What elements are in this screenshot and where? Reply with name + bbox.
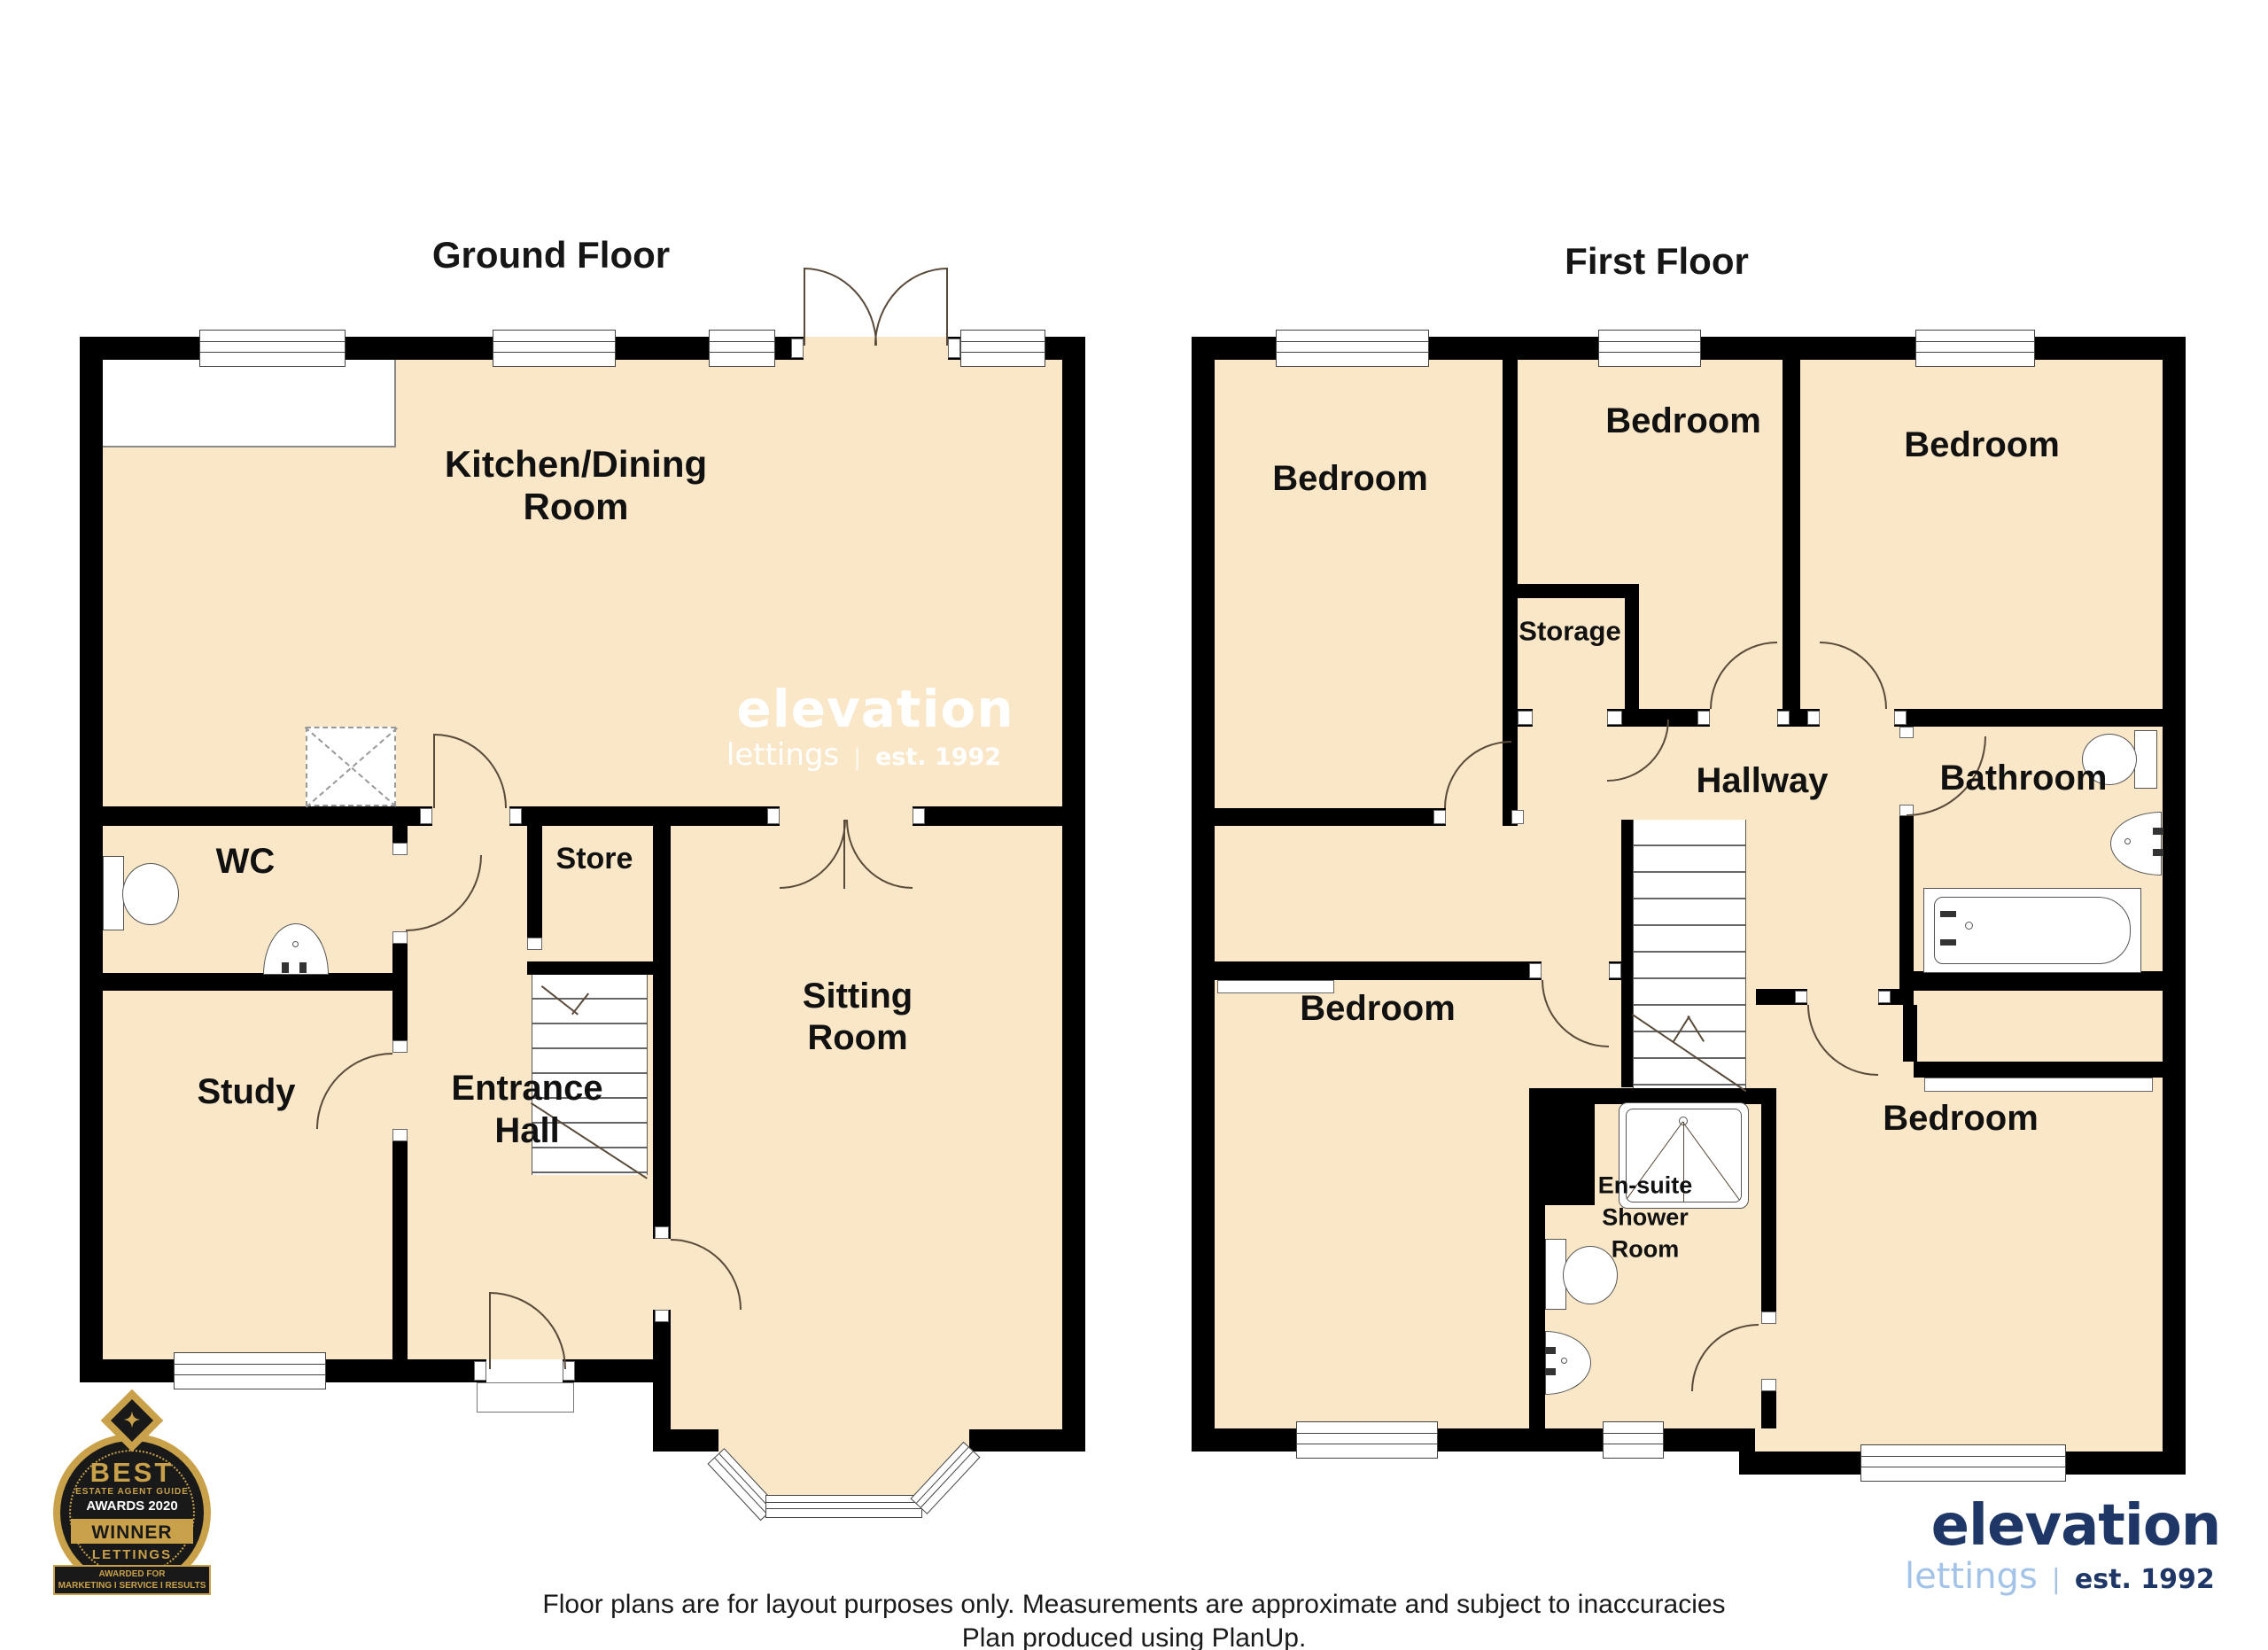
wall [1621, 820, 1633, 1087]
floorplan-page: Ground Floor First Floor [0, 0, 2268, 1650]
door-jamb [913, 808, 925, 824]
badge-star-icon: ✦ [124, 1409, 140, 1432]
door-jamb [1795, 991, 1807, 1003]
door-opening [432, 806, 509, 826]
tap-icon [282, 962, 289, 973]
wall [80, 973, 392, 991]
door-jamb [1609, 963, 1621, 978]
label-store: Store [556, 844, 633, 874]
first-floor-title: First Floor [1565, 240, 1749, 283]
wall [1914, 1062, 2163, 1078]
wall [80, 1359, 671, 1382]
label-storage: Storage [1518, 618, 1620, 645]
door-jamb [655, 1226, 669, 1239]
label-entrance-line2: Hall [494, 1113, 559, 1148]
wall [1783, 360, 1800, 709]
ground-floor-title: Ground Floor [432, 234, 670, 276]
wall [1192, 337, 1215, 1452]
window [199, 330, 346, 367]
porch-step [477, 1382, 574, 1413]
badge-awarded-text: AWARDED FOR [99, 1569, 166, 1579]
wall [527, 826, 542, 938]
badge-awards-text: AWARDS 2020 [86, 1498, 177, 1514]
wall [969, 1429, 1085, 1452]
door-jamb [1433, 810, 1446, 824]
door-jamb [1761, 1379, 1776, 1391]
door-jamb [1511, 810, 1524, 824]
wall [80, 337, 103, 1382]
watermark-est: est. 1992 [875, 743, 1001, 771]
window [174, 1352, 326, 1389]
toilet-icon [1563, 1246, 1618, 1304]
watermark-brand: elevation [736, 679, 1014, 739]
door-leaf [433, 734, 435, 808]
tap-icon [1545, 1368, 1556, 1375]
door-jamb [420, 808, 432, 824]
door-jamb [392, 931, 408, 944]
window [709, 330, 775, 367]
label-hallway: Hallway [1697, 763, 1829, 798]
label-bathroom: Bathroom [1940, 760, 2108, 796]
label-bedroom-4: Bedroom [1883, 1101, 2039, 1136]
door-jamb [767, 808, 780, 824]
wall [1761, 1104, 1776, 1324]
drain-icon [2124, 838, 2131, 844]
footer-disclaimer-line2: Plan produced using PlanUp. [0, 1623, 2268, 1650]
label-bedroom-5: Bedroom [1300, 991, 1456, 1026]
door-leaf [946, 268, 948, 346]
wall [1625, 584, 1639, 722]
bay-window [765, 1495, 922, 1518]
door-jamb [1761, 1311, 1776, 1324]
label-sitting-line2: Room [807, 1020, 907, 1055]
tap-icon [1940, 911, 1956, 917]
drain-icon [1561, 1358, 1567, 1364]
badge-winner-text: WINNER [91, 1522, 172, 1544]
door-jamb [527, 938, 542, 950]
wardrobe-strip [1924, 1078, 2153, 1092]
window [960, 330, 1045, 367]
badge-lettings-text: LETTINGS [92, 1547, 172, 1562]
window [1915, 330, 2035, 367]
label-bedroom-3: Bedroom [1904, 427, 2060, 463]
door-jamb [509, 808, 522, 824]
window [1603, 1421, 1664, 1459]
wall [2163, 337, 2186, 1475]
door-jamb [392, 1129, 408, 1141]
wall [1215, 961, 1542, 980]
label-sitting-line1: Sitting [803, 978, 913, 1014]
wall [1899, 816, 1914, 989]
drain-icon [292, 941, 299, 947]
window [1296, 1421, 1438, 1459]
label-bedroom-2: Bedroom [1605, 403, 1761, 439]
tap-icon [299, 962, 307, 973]
wall [653, 806, 671, 1239]
drain-icon [1965, 922, 1973, 930]
label-ensuite-line1: En-suite [1598, 1174, 1693, 1198]
gf-kitchen-notch [103, 360, 396, 448]
bath-icon [1934, 897, 2131, 964]
stairs-first [1633, 820, 1746, 1088]
door-jamb [1518, 711, 1533, 725]
window [1860, 1444, 2066, 1482]
logo-brand: elevation [1931, 1493, 2221, 1559]
wall [392, 931, 408, 1053]
window [1276, 330, 1429, 367]
footer-disclaimer-line1: Floor plans are for layout purposes only… [0, 1590, 2268, 1620]
door-arc [874, 268, 948, 346]
best-estate-agent-guide-badge: ✦ BEST ESTATE AGENT GUIDE AWARDS 2020 WI… [51, 1395, 213, 1597]
door-jamb [655, 1310, 669, 1322]
label-bedroom-1: Bedroom [1272, 461, 1428, 496]
label-entrance-line1: Entrance [451, 1070, 602, 1106]
wall [527, 961, 671, 975]
toilet-icon [122, 863, 179, 925]
door-jamb [1697, 711, 1710, 725]
door-jamb [1777, 711, 1790, 725]
watermark-separator: | [853, 744, 861, 771]
toilet-icon [2134, 730, 2157, 789]
label-kitchen-line2: Room [524, 488, 629, 525]
door-jamb [1529, 963, 1542, 978]
door-leaf [489, 1292, 491, 1369]
wall [1903, 1005, 1917, 1062]
wall [1529, 1205, 1545, 1428]
badge-best-text: BEST [90, 1457, 175, 1489]
label-kitchen-line1: Kitchen/Dining [445, 446, 707, 483]
wall [653, 1429, 718, 1452]
door-jamb [392, 1040, 408, 1053]
watermark-lettings: lettings [726, 737, 839, 773]
window [493, 330, 616, 367]
wall [392, 1129, 408, 1359]
door-jamb [1807, 711, 1820, 725]
door-jamb [1878, 991, 1891, 1003]
wall-void [1529, 1088, 1595, 1205]
watermark-subline: lettings | est. 1992 [726, 737, 1001, 773]
door-jamb [791, 339, 804, 358]
tap-icon [2153, 849, 2163, 856]
wall [1899, 971, 2186, 991]
tap-icon [1545, 1347, 1556, 1354]
wall [80, 806, 671, 826]
label-study: Study [197, 1074, 295, 1109]
label-wc: WC [216, 844, 276, 879]
door-jamb [1894, 711, 1907, 725]
wall [1062, 337, 1085, 1452]
tap-icon [2153, 828, 2163, 835]
toilet-icon [103, 856, 124, 930]
label-ensuite-line3: Room [1612, 1238, 1680, 1262]
window [1598, 330, 1701, 367]
door-jamb [392, 843, 408, 855]
wall [1761, 1391, 1776, 1428]
door-leaf [843, 820, 845, 889]
wall [1192, 1428, 1755, 1452]
door-arc [804, 268, 877, 346]
wall [1215, 808, 1446, 826]
badge-guide-text: ESTATE AGENT GUIDE [75, 1487, 189, 1497]
tap-icon [1940, 939, 1956, 946]
door-jamb [474, 1361, 486, 1381]
wall [1503, 584, 1639, 598]
door-leaf [804, 268, 805, 346]
label-ensuite-line2: Shower [1602, 1206, 1689, 1230]
door-jamb [948, 339, 960, 358]
wall [1894, 709, 2186, 727]
